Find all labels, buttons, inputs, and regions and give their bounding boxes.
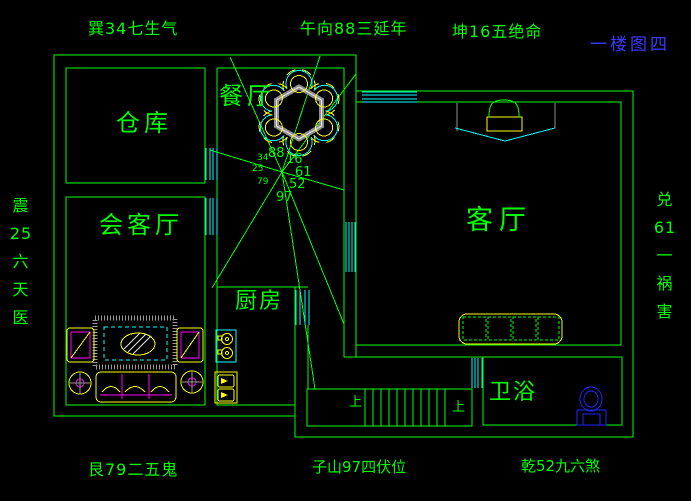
compass-label-bottom-right: 乾52九六煞 <box>521 458 600 475</box>
star-sw: 79 <box>257 178 268 188</box>
star-n: 88 <box>268 147 285 161</box>
floor-plan-drawing <box>0 0 691 501</box>
drawing-title: 一楼图四 <box>590 36 670 55</box>
side-table-right <box>181 371 203 393</box>
star-s: 97 <box>276 191 293 205</box>
sofa-three-seat <box>96 372 176 402</box>
side-table-left <box>69 372 91 394</box>
coffee-table <box>121 333 155 355</box>
tv-unit <box>455 100 555 141</box>
room-label-reception: 会客厅 <box>99 212 183 238</box>
room-label-storage: 仓库 <box>116 110 172 136</box>
window-living-left <box>346 222 355 272</box>
interior-walls <box>217 68 483 416</box>
armchair-left <box>67 328 94 362</box>
compass-label-left: 震 25 六 天 医 <box>8 192 34 332</box>
window-west-lower <box>206 198 217 235</box>
room-label-dining: 餐厅 <box>219 83 275 109</box>
stairs-up-label-right: 上 <box>452 401 465 415</box>
kitchen-fixtures <box>215 330 237 403</box>
star-w: 25 <box>252 165 263 175</box>
reception-furniture <box>67 318 203 402</box>
room-label-bath: 卫浴 <box>489 381 537 405</box>
room-label-living: 客厅 <box>466 206 532 236</box>
sofa-four-seat <box>459 314 562 344</box>
window-living-top <box>362 92 417 102</box>
stairs-up-label-left: 上 <box>349 396 362 410</box>
stove <box>216 330 236 362</box>
window-west-upper <box>206 148 217 180</box>
window-stair-bath <box>472 358 482 388</box>
compass-label-bottom-left: 艮79二五鬼 <box>88 461 178 479</box>
compass-label-right: 兑 61 一 祸 害 <box>652 186 678 326</box>
armchair-right <box>177 328 203 362</box>
sink <box>215 372 237 403</box>
compass-label-top-left: 巽34七生气 <box>88 20 178 38</box>
floor-plan-canvas[interactable]: 巽34七生气 午向88三延年 坤16五绝命 一楼图四 震 25 六 天 医 兑 … <box>0 0 691 501</box>
room-label-kitchen: 厨房 <box>235 290 283 314</box>
toilet <box>577 387 606 425</box>
compass-label-top-center: 午向88三延年 <box>300 20 407 38</box>
compass-label-bottom-center: 子山97四伏位 <box>312 459 406 476</box>
compass-label-top-right: 坤16五绝命 <box>452 23 542 41</box>
star-nw: 34 <box>257 154 268 164</box>
stair-treads <box>365 389 445 426</box>
